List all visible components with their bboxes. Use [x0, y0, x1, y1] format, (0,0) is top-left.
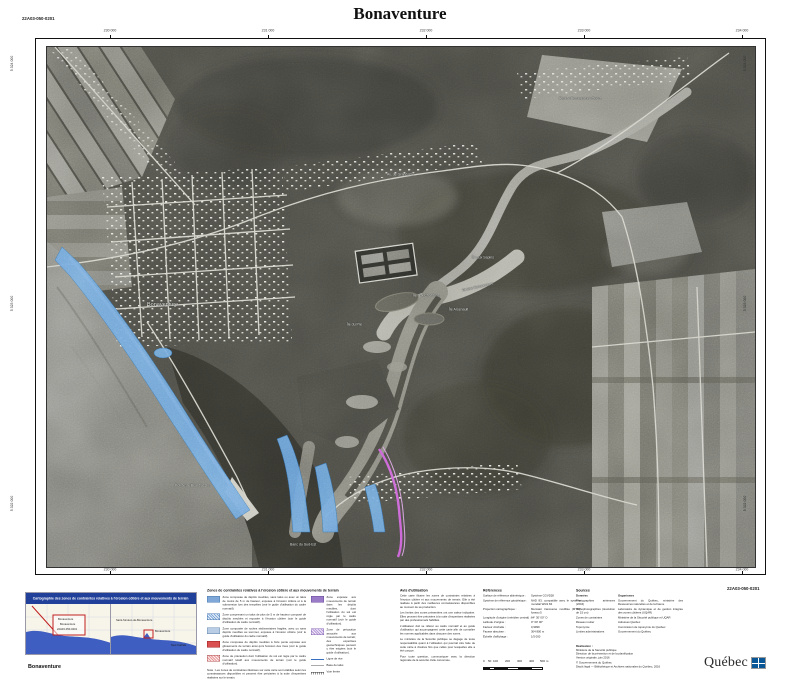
scale-label: 300 [517, 660, 522, 663]
scale-bar: 0 50 100 200 300 400 500 m [483, 660, 553, 674]
label-town-bonaventure: Bonaventure [147, 302, 178, 308]
inset-map-local: Saint-Siméon-de-Bonaventure Bonaventure … [111, 604, 196, 654]
sources-header-row: Données Organismes [576, 595, 684, 599]
legend-item: Zone composée de roches sédimentaires fr… [207, 627, 306, 638]
usage-notice-panel: Avis d'utilisation Cette carte illustre … [400, 589, 475, 681]
reference-row: Surface de référence altimétrique :Systè… [483, 595, 583, 599]
reference-row: Facteur d'échelle :0,9999 [483, 626, 583, 630]
inset-right-label-3: New Carlisle [171, 644, 186, 647]
railway-line-icon [311, 672, 324, 675]
grid-label-left: 5 322 000 [10, 489, 14, 519]
scale-label: 0 [483, 660, 485, 663]
grid-tick [426, 35, 427, 39]
legend-item: Zone de précaution associée aux mouvemen… [311, 629, 356, 655]
grid-label-left: 5 324 000 [10, 49, 14, 79]
references-title: Références [483, 589, 583, 593]
source-row: Zones de contraintesMinistère de la Sécu… [576, 616, 684, 620]
usage-notice-paragraph: Cette carte illustre les zones de contra… [400, 595, 475, 610]
reference-row: Projection cartographique :Mercator tran… [483, 608, 583, 616]
swatch-movement-purple-hatched [311, 629, 324, 636]
inset-right-label-2: Bonaventure [155, 630, 170, 633]
legal-deposit-line: Dépôt légal — Bibliothèque et Archives n… [576, 665, 696, 669]
grid-label-left: 5 323 000 [10, 289, 14, 319]
grid-label-top: 232 000 [411, 29, 441, 33]
label-riviere-bonaventure-ouest: Rivière Bonaventure Ouest [559, 97, 601, 101]
grid-tick [268, 35, 269, 39]
swatch-erosion-zone-blue [207, 596, 220, 603]
source-row: Photographies aériennes (2004)Gouverneme… [576, 599, 684, 607]
grid-tick [110, 571, 111, 575]
scale-segment [519, 667, 531, 670]
scale-segment [531, 667, 543, 670]
label-ile-aux-sapins: Île aux Sapins [472, 256, 494, 260]
grid-label-top: 233 000 [569, 29, 599, 33]
label-pointe-de-beaubassin: Pointe de Beaubassin [175, 484, 209, 488]
inset-left-label-1: Bonaventure [58, 618, 73, 621]
legend-symbol-talus-base: Base de talus [311, 664, 356, 668]
label-av-de-grand-pre: Av. de Grand-Pré [387, 173, 414, 177]
label-ile-aux-chardons: Île aux Chardons [413, 294, 439, 298]
grid-tick [742, 35, 743, 39]
scale-label: 400 [529, 660, 534, 663]
scale-segment [495, 667, 507, 670]
grid-label-right: 5 323 000 [743, 289, 747, 319]
scale-label: 200 [505, 660, 510, 663]
legend-title: Zones de contraintes relatives à l'érosi… [207, 589, 357, 593]
legend-panel: Zones de contraintes relatives à l'érosi… [207, 589, 357, 681]
legend-item: Zone composée de dépôts meubles, sans ta… [207, 596, 306, 611]
scale-label: 500 m [540, 660, 548, 663]
source-row: Orthophotographies (résolution de 15 cm)… [576, 608, 684, 616]
reference-row: Échelle d'affichage :1/5 000 [483, 635, 583, 639]
grid-tick [742, 571, 743, 575]
location-inset-panel: Cartographie des zones de contraintes re… [25, 592, 197, 655]
legend-item: Zone composée de dépôts meubles à forte … [207, 641, 306, 652]
scale-segment [507, 667, 519, 670]
aerial-photo: Bonaventure Pointe de Beaubassin Rivière… [47, 47, 755, 567]
label-ile-du-pre: Île du Pré [347, 323, 362, 327]
sources-panel: Sources Données Organismes Photographies… [576, 589, 684, 643]
usage-notice-paragraph: Le ministère de la Sécurité publique se … [400, 638, 475, 653]
grid-tick [426, 571, 427, 575]
legend-item: Zone de précaution dont l'utilisation du… [207, 655, 306, 666]
inset-left-label-3: 22A03-050-0201 [57, 628, 77, 631]
grid-tick [268, 571, 269, 575]
legend-item: Zone exposée aux mouvements de terrain d… [311, 596, 356, 626]
sources-title: Sources [576, 589, 684, 593]
talus-base-line-icon [311, 666, 324, 667]
legend-nota: Nota : Les zones de contraintes illustré… [207, 669, 306, 680]
inset-title: Cartographie des zones de contraintes re… [33, 597, 189, 601]
footer-map-name: Bonaventure [28, 663, 61, 669]
swatch-precaution-pink-hatched [207, 655, 220, 662]
quebec-logo: Québec [704, 651, 784, 675]
inset-title-bar: Cartographie des zones de contraintes re… [26, 593, 196, 604]
references-panel: Références Surface de référence altimétr… [483, 589, 583, 659]
credits-line: Version originale, juin 2016 [576, 656, 696, 660]
swatch-landslide-red [207, 641, 220, 648]
credits-panel: Réalisation : Ministère de la Sécurité p… [576, 645, 696, 681]
legend-symbol-railway: Voie ferrée [311, 671, 356, 675]
grid-tick [584, 35, 585, 39]
sheet-code-top-left: 22A03-050-0201 [22, 17, 75, 24]
page-title: Bonaventure [0, 4, 800, 24]
source-row: ToponymieCommission de toponymie du Québ… [576, 626, 684, 630]
source-row: Réseau routierAdresses Québec [576, 621, 684, 625]
swatch-erosion-talus-hatched [207, 614, 220, 621]
map-sheet: Bonaventure 22A03-050-0201 [0, 0, 800, 686]
shoreline-line-icon [311, 659, 324, 660]
grid-label-right: 5 324 000 [743, 49, 747, 79]
swatch-erosion-rock-striped [207, 627, 220, 634]
reference-row: Fausse abscisse :304 800 m [483, 631, 583, 635]
reference-row: Latitude d'origine :0° 00′ 00″ [483, 621, 583, 625]
grid-tick [584, 571, 585, 575]
source-row: Limites administrativesGouvernement du Q… [576, 631, 684, 635]
quebec-wordmark: Québec [704, 655, 748, 671]
usage-notice-paragraph: Pour toute question, communiquer avec la… [400, 655, 475, 663]
legend-symbol-shoreline: Ligne de rive [311, 658, 356, 662]
usage-notice-paragraph: L'utilisateur doit se référer au cadre n… [400, 625, 475, 636]
grid-tick [110, 35, 111, 39]
sheet-code-bottom-right: 22A03-050-0201 [727, 587, 780, 594]
grid-label-right: 5 322 000 [743, 489, 747, 519]
grid-label-top: 231 000 [253, 29, 283, 33]
inset-right-label-1: Saint-Siméon-de-Bonaventure [116, 619, 152, 622]
reference-row: Longitude d'origine (méridien central) :… [483, 616, 583, 620]
grid-label-top: 230 000 [95, 29, 125, 33]
usage-notice-paragraph: Les limites des zones présentées ont une… [400, 612, 475, 623]
scale-label: 100 [493, 660, 498, 663]
reference-row: Système de référence géodésique :NAD 83,… [483, 599, 583, 607]
quebec-flag-icon [751, 657, 766, 669]
inset-left-label-2: Bonaventure [60, 623, 75, 626]
grid-label-top: 234 000 [727, 29, 757, 33]
label-ile-arsenault: Île Arsenault [449, 308, 468, 312]
legend-item: Zone comprenant un talus de plus de 5 m … [207, 614, 306, 625]
scale-label: 50 [488, 660, 491, 663]
usage-notice-title: Avis d'utilisation [400, 589, 475, 593]
label-banc-du-sud-est: Banc du Sud-Est [290, 543, 316, 547]
inset-map-region: Bonaventure Bonaventure 22A03-050-0201 [26, 604, 111, 654]
swatch-movement-purple [311, 596, 324, 603]
